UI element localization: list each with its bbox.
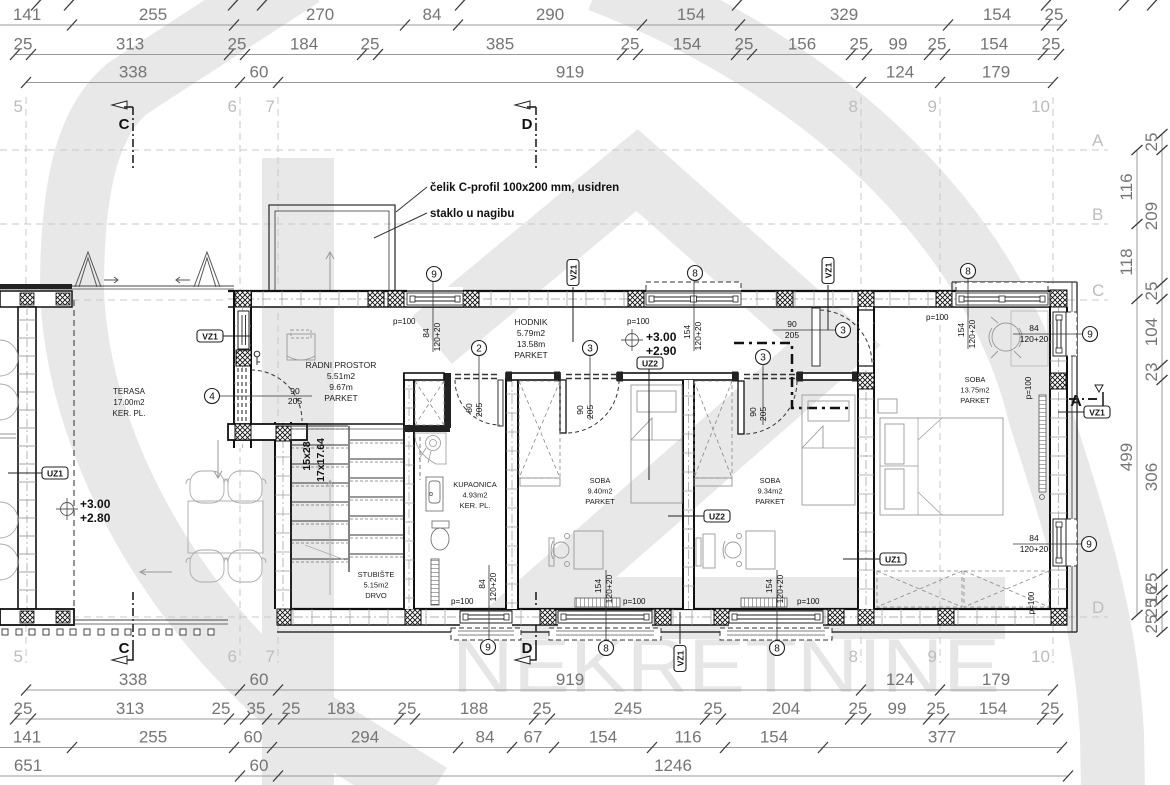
svg-text:84: 84: [421, 328, 431, 338]
svg-text:9: 9: [431, 270, 437, 281]
svg-text:p=100: p=100: [1027, 591, 1036, 614]
svg-text:VZ1: VZ1: [1089, 408, 1105, 418]
svg-text:184: 184: [290, 35, 318, 54]
svg-text:154: 154: [760, 728, 788, 747]
svg-text:919: 919: [556, 63, 584, 82]
svg-text:25: 25: [850, 35, 869, 54]
svg-text:154: 154: [593, 579, 603, 593]
svg-text:25: 25: [621, 35, 640, 54]
svg-text:25: 25: [704, 699, 723, 718]
svg-text:PARKET: PARKET: [960, 396, 990, 405]
svg-text:UZ2: UZ2: [709, 512, 725, 522]
svg-text:9.40m2: 9.40m2: [587, 487, 612, 496]
svg-text:919: 919: [556, 670, 584, 689]
svg-text:25: 25: [927, 699, 946, 718]
svg-text:205: 205: [474, 403, 484, 417]
svg-text:154: 154: [979, 699, 1007, 718]
svg-text:7: 7: [266, 97, 275, 116]
svg-text:99: 99: [888, 699, 907, 718]
svg-text:SOBA: SOBA: [760, 476, 781, 485]
svg-text:205: 205: [785, 330, 799, 340]
svg-text:23: 23: [1142, 363, 1161, 382]
svg-text:60: 60: [250, 63, 269, 82]
svg-text:25: 25: [928, 35, 947, 54]
svg-text:staklo u nagibu: staklo u nagibu: [430, 208, 514, 220]
svg-text:60: 60: [250, 670, 269, 689]
svg-text:154: 154: [956, 323, 966, 337]
svg-text:4: 4: [209, 392, 215, 403]
svg-text:VZ1: VZ1: [676, 650, 686, 666]
svg-text:9: 9: [928, 647, 937, 666]
svg-text:290: 290: [536, 5, 564, 24]
svg-text:67: 67: [524, 728, 543, 747]
svg-text:154: 154: [764, 579, 774, 593]
svg-text:RADNI PROSTOR: RADNI PROSTOR: [306, 360, 377, 370]
svg-text:13.75m2: 13.75m2: [960, 386, 989, 395]
svg-text:SOBA: SOBA: [965, 375, 986, 384]
svg-text:60: 60: [250, 756, 269, 775]
svg-text:25: 25: [1042, 35, 1061, 54]
svg-text:9.34m2: 9.34m2: [757, 487, 782, 496]
svg-text:10: 10: [1031, 97, 1050, 116]
svg-text:D: D: [522, 116, 533, 133]
svg-text:PARKET: PARKET: [514, 350, 547, 360]
svg-text:25: 25: [212, 699, 231, 718]
svg-text:120+20: 120+20: [1020, 334, 1049, 344]
svg-text:6: 6: [228, 647, 237, 666]
svg-text:120+20: 120+20: [488, 572, 498, 601]
svg-text:D: D: [522, 640, 533, 657]
svg-text:120+20: 120+20: [604, 574, 614, 603]
svg-text:9: 9: [1086, 540, 1092, 551]
svg-text:+2.90: +2.90: [646, 344, 677, 358]
svg-text:3: 3: [587, 344, 593, 355]
svg-text:90: 90: [290, 386, 300, 396]
svg-text:UZ2: UZ2: [642, 359, 658, 369]
svg-text:84: 84: [1029, 323, 1039, 333]
svg-text:154: 154: [980, 35, 1008, 54]
svg-text:188: 188: [460, 699, 488, 718]
svg-text:205: 205: [288, 396, 302, 406]
svg-text:84: 84: [477, 579, 487, 589]
svg-text:8: 8: [849, 647, 858, 666]
svg-text:9.67m: 9.67m: [329, 382, 353, 392]
svg-text:179: 179: [982, 63, 1010, 82]
svg-text:84: 84: [423, 5, 442, 24]
svg-text:KUPAONICA: KUPAONICA: [453, 480, 497, 489]
svg-text:99: 99: [889, 35, 908, 54]
svg-text:3: 3: [760, 353, 766, 364]
svg-text:120+20: 120+20: [1020, 544, 1049, 554]
svg-text:+3.00: +3.00: [646, 330, 677, 344]
svg-text:čelik C-profil 100x200 mm, usi: čelik C-profil 100x200 mm, usidren: [430, 182, 619, 194]
svg-text:90: 90: [748, 407, 758, 417]
svg-text:10: 10: [1031, 647, 1050, 666]
svg-text:385: 385: [486, 35, 514, 54]
svg-text:TERASA: TERASA: [113, 387, 146, 396]
svg-text:13.58m: 13.58m: [517, 339, 545, 349]
svg-text:120+20: 120+20: [432, 322, 442, 351]
svg-text:VZ1: VZ1: [824, 262, 834, 278]
svg-text:KER. PL.: KER. PL.: [460, 501, 491, 510]
svg-text:25: 25: [398, 699, 417, 718]
svg-text:8: 8: [849, 97, 858, 116]
svg-text:183: 183: [327, 699, 355, 718]
svg-text:209: 209: [1142, 202, 1161, 230]
svg-text:B: B: [1092, 205, 1103, 224]
svg-text:651: 651: [14, 756, 42, 775]
svg-text:9: 9: [1087, 330, 1093, 341]
svg-text:p=100: p=100: [451, 597, 474, 606]
svg-text:25: 25: [533, 699, 552, 718]
svg-text:STUBIŠTE: STUBIŠTE: [358, 570, 395, 579]
svg-text:2: 2: [476, 344, 482, 355]
svg-text:5.51m2: 5.51m2: [327, 371, 356, 381]
svg-text:205: 205: [758, 407, 768, 421]
svg-text:294: 294: [351, 728, 379, 747]
svg-text:116: 116: [1117, 173, 1136, 200]
svg-text:8: 8: [774, 644, 780, 655]
svg-text:338: 338: [119, 63, 147, 82]
svg-text:p=100: p=100: [623, 597, 646, 606]
svg-text:255: 255: [139, 5, 167, 24]
svg-text:154: 154: [983, 5, 1011, 24]
svg-text:p=100: p=100: [797, 597, 820, 606]
svg-text:25: 25: [228, 35, 247, 54]
svg-text:329: 329: [830, 5, 858, 24]
svg-text:141: 141: [13, 5, 41, 24]
svg-text:154: 154: [589, 728, 617, 747]
svg-text:D: D: [1092, 598, 1104, 617]
svg-text:1246: 1246: [654, 756, 692, 775]
svg-text:C: C: [119, 116, 130, 133]
svg-text:499: 499: [1117, 443, 1136, 471]
svg-text:156: 156: [788, 35, 816, 54]
svg-text:25: 25: [1142, 282, 1161, 301]
svg-text:120+20: 120+20: [775, 574, 785, 603]
svg-text:PARKET: PARKET: [324, 393, 357, 403]
svg-text:9: 9: [485, 643, 491, 654]
svg-text:p=100: p=100: [1024, 376, 1033, 399]
svg-text:+3.00: +3.00: [80, 497, 111, 511]
svg-text:154: 154: [682, 325, 692, 339]
svg-text:245: 245: [614, 699, 642, 718]
svg-text:4.93m2: 4.93m2: [462, 491, 487, 500]
svg-text:6: 6: [228, 97, 237, 116]
svg-text:84: 84: [476, 728, 495, 747]
svg-text:35: 35: [247, 699, 266, 718]
svg-text:270: 270: [306, 5, 334, 24]
svg-text:PARKET: PARKET: [755, 497, 785, 506]
svg-text:8: 8: [692, 269, 698, 280]
svg-text:116: 116: [674, 728, 701, 747]
svg-text:25: 25: [1045, 5, 1064, 24]
svg-text:17.00m2: 17.00m2: [113, 398, 145, 407]
svg-text:306: 306: [1142, 463, 1161, 491]
svg-text:9: 9: [928, 97, 937, 116]
svg-text:205: 205: [585, 405, 595, 419]
svg-text:25: 25: [849, 699, 868, 718]
svg-text:5: 5: [14, 647, 23, 666]
svg-text:p=100: p=100: [627, 317, 650, 326]
svg-text:141: 141: [13, 728, 41, 747]
svg-text:15x28: 15x28: [301, 441, 313, 470]
svg-text:179: 179: [982, 670, 1010, 689]
svg-text:UZ1: UZ1: [47, 469, 63, 479]
svg-text:5: 5: [14, 97, 23, 116]
svg-text:p=100: p=100: [926, 313, 949, 322]
svg-text:25: 25: [1142, 133, 1161, 152]
svg-text:p=100: p=100: [393, 317, 416, 326]
svg-text:154: 154: [677, 5, 705, 24]
svg-text:7: 7: [266, 647, 275, 666]
svg-text:25: 25: [361, 35, 380, 54]
svg-text:25: 25: [1041, 699, 1060, 718]
svg-text:120+20: 120+20: [693, 321, 703, 350]
svg-text:124: 124: [886, 670, 914, 689]
svg-text:+2.80: +2.80: [80, 511, 111, 525]
svg-text:104: 104: [1142, 318, 1161, 346]
svg-text:8: 8: [965, 267, 971, 278]
svg-text:25: 25: [735, 35, 754, 54]
svg-text:204: 204: [772, 699, 800, 718]
svg-text:HODNIK: HODNIK: [514, 317, 547, 327]
svg-text:5.79m2: 5.79m2: [517, 328, 546, 338]
svg-text:25: 25: [14, 35, 33, 54]
svg-text:313: 313: [116, 699, 144, 718]
svg-text:C: C: [119, 640, 130, 657]
svg-text:VZ1: VZ1: [569, 264, 579, 280]
svg-text:377: 377: [928, 728, 956, 747]
svg-text:5.15m2: 5.15m2: [363, 581, 388, 590]
svg-text:60: 60: [244, 728, 263, 747]
svg-text:VZ1: VZ1: [202, 332, 218, 342]
svg-text:80: 80: [464, 403, 474, 413]
svg-text:UZ1: UZ1: [885, 555, 901, 565]
svg-text:118: 118: [1117, 248, 1136, 275]
svg-text:90: 90: [787, 319, 797, 329]
svg-text:338: 338: [119, 670, 147, 689]
svg-text:90: 90: [575, 405, 585, 415]
svg-text:DRVO: DRVO: [365, 591, 387, 600]
svg-text:SOBA: SOBA: [590, 476, 611, 485]
svg-text:124: 124: [886, 63, 914, 82]
svg-text:3: 3: [840, 326, 846, 337]
svg-text:A: A: [1092, 131, 1104, 150]
svg-text:25: 25: [1142, 615, 1161, 634]
svg-text:154: 154: [673, 35, 701, 54]
svg-text:KER. PL.: KER. PL.: [113, 409, 146, 418]
svg-text:25: 25: [282, 699, 301, 718]
svg-text:84: 84: [1029, 533, 1039, 543]
svg-text:17x17.64: 17x17.64: [315, 438, 327, 482]
svg-text:PARKET: PARKET: [585, 497, 615, 506]
svg-text:120+20: 120+20: [967, 319, 977, 348]
svg-text:25: 25: [14, 699, 33, 718]
svg-text:313: 313: [116, 35, 144, 54]
svg-text:C: C: [1092, 281, 1104, 300]
svg-text:8: 8: [603, 644, 609, 655]
svg-text:255: 255: [139, 728, 167, 747]
